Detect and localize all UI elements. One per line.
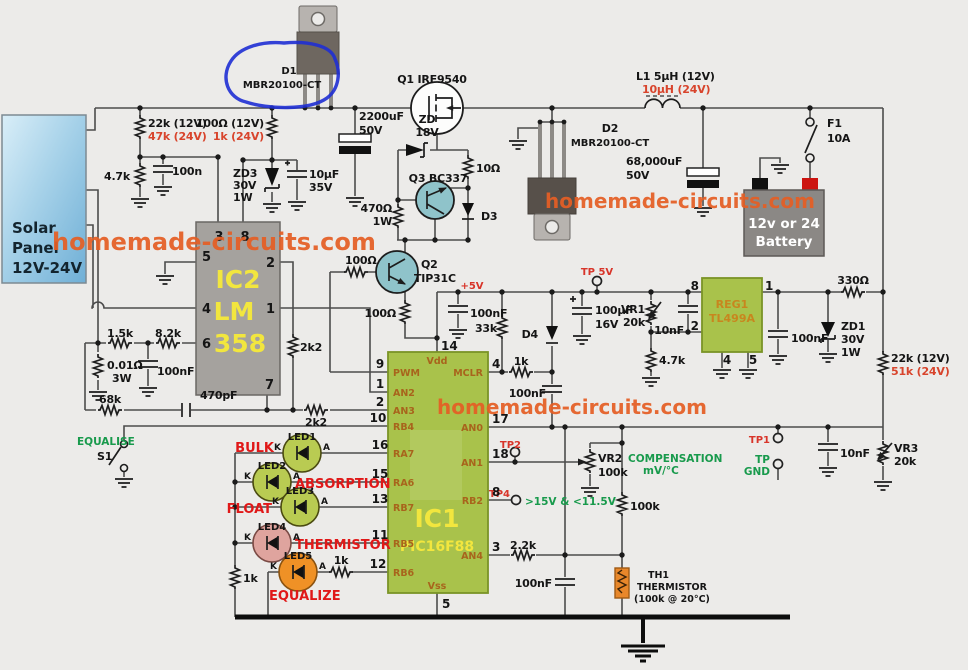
led4-ref: LED4 <box>258 522 287 533</box>
c100n-reg: 100nF <box>791 332 828 345</box>
ic1-pwm: PWM <box>393 368 420 379</box>
ic1-an0: AN0 <box>461 423 483 434</box>
r100-emitter: 100Ω <box>364 307 396 320</box>
ic2-ref: IC2 <box>215 265 260 294</box>
tp-gnd-point <box>774 460 783 469</box>
reg1-pin2: 2 <box>691 319 699 333</box>
compensation-a: COMPENSATION <box>628 453 722 465</box>
d2-package <box>528 124 576 240</box>
ic1-rb7: RB7 <box>393 503 414 514</box>
ic1-pin10: 10 <box>370 411 387 425</box>
led4-k: K <box>244 533 252 543</box>
ic1-vss: Vss <box>428 581 447 592</box>
ground-bus <box>235 617 790 661</box>
vr3-val: 20k <box>894 455 917 468</box>
r001-w: 3W <box>112 372 131 385</box>
reg1-pin1: 1 <box>765 279 773 293</box>
ic1-vdd: Vdd <box>427 356 448 367</box>
c100n-5v: 100nF <box>470 307 507 320</box>
r68k-label: 68k <box>99 393 122 406</box>
r1k-mclr: 1k <box>514 355 529 368</box>
q2-tip31c <box>376 251 418 293</box>
ic2-pin4: 4 <box>202 302 211 317</box>
zener-zd-18v <box>406 143 428 157</box>
vr3-ref: VR3 <box>894 442 918 455</box>
reg1-pin5: 5 <box>749 353 757 367</box>
r22k-24v: 47k (24V) <box>148 130 207 143</box>
c10u-label: 10μF <box>309 168 339 181</box>
vr2-val: 100k <box>598 466 628 479</box>
zd-v: 18V <box>415 126 439 139</box>
equalize-caption: EQUALIZE <box>269 589 341 604</box>
ic1-pin12: 12 <box>370 557 387 571</box>
cap-100uf <box>570 296 592 314</box>
equalise-label: EQUALISE <box>77 436 135 448</box>
q3-label: Q3 BC337 <box>409 172 468 185</box>
ic1-an2: AN2 <box>393 388 415 399</box>
watermark-2: homemade-circuits.com <box>545 189 815 213</box>
led1-a: A <box>323 443 330 453</box>
f1-v: 10A <box>827 132 851 145</box>
r22k-right-12v: 22k (12V) <box>891 352 950 365</box>
main-earth-symbol <box>621 646 665 661</box>
solar-panel: Solar Panel 12V-24V <box>2 115 86 283</box>
reg1-tl499a: REG1 TL499A <box>702 278 762 352</box>
vr1-val: 20k <box>623 316 646 329</box>
inductor-l1 <box>645 99 680 108</box>
r2k2-vertical: 2k2 <box>300 341 322 354</box>
ic1-pin15: 15 <box>372 467 389 481</box>
r1k-bus: 1k <box>243 572 258 585</box>
ic1-rb4: RB4 <box>393 422 415 433</box>
led2-a: A <box>293 472 300 482</box>
tp-gnd-a: TP <box>755 454 770 466</box>
r470-w: 1W <box>373 215 392 228</box>
r100-base: 100Ω <box>345 254 377 267</box>
cap-2200uf-plate2 <box>339 146 371 154</box>
r100k-label: 100k <box>630 500 660 513</box>
ic1-pin9: 9 <box>376 357 384 371</box>
cap-470pf <box>182 403 190 417</box>
ic1-ra6: RA6 <box>393 478 415 489</box>
battery-line1: 12v or 24 <box>748 216 820 232</box>
watermark-1: homemade-circuits.com <box>52 228 376 256</box>
tp5v-label: TP 5V <box>581 267 614 278</box>
s1-label: S1 <box>97 450 112 463</box>
ic1-pin11: 11 <box>372 528 389 542</box>
ic1-ra7: RA7 <box>393 449 414 460</box>
ic1-pin2: 2 <box>376 395 384 409</box>
tp1-point <box>774 434 783 443</box>
ic1-an3: AN3 <box>393 406 415 417</box>
ic2-pin1: 1 <box>266 302 275 317</box>
f1-ref: F1 <box>827 117 842 130</box>
r4k7-top: 4.7k <box>104 170 131 183</box>
cap-68000uf-plate2 <box>687 180 719 188</box>
c100n-left: 100nF <box>157 365 194 378</box>
r001-label: 0.01Ω <box>107 359 143 372</box>
reg1-val: TL499A <box>709 312 755 325</box>
vr1-ref: VR1 <box>621 303 645 316</box>
tp4-note: >15V & <11.5V <box>525 496 617 508</box>
ic1-pin8: 8 <box>492 485 500 499</box>
diode-d4 <box>546 326 558 343</box>
c10u-v: 35V <box>309 181 333 194</box>
d3-label: D3 <box>481 210 497 223</box>
ic2-pin6: 6 <box>202 337 211 352</box>
bulk-caption: BULK <box>235 441 275 456</box>
c10n-vr1: 10nF <box>654 324 684 337</box>
watermark-3: homemade-circuits.com <box>437 395 707 419</box>
solar-line1: Solar <box>12 219 56 237</box>
tp1-label: TP1 <box>749 435 770 446</box>
q3-bc337 <box>416 181 454 219</box>
cap-68000uf-plate <box>687 168 719 176</box>
d2-val: MBR20100-CT <box>571 138 650 149</box>
c100u-v: 16V <box>595 318 619 331</box>
reg1-pin8: 8 <box>691 279 699 293</box>
ic1-rb6: RB6 <box>393 568 415 579</box>
q1-label: Q1 IRF9540 <box>397 73 467 86</box>
th1-name: THERMISTOR <box>637 582 708 593</box>
ic1-pin17: 17 <box>492 412 509 426</box>
c10n-right: 10nF <box>840 447 870 460</box>
battery-line2: Battery <box>756 234 813 250</box>
r4k7-vr1: 4.7k <box>659 354 686 367</box>
r1k-equalize: 1k <box>334 554 349 567</box>
r2k2-horizontal: 2k2 <box>305 416 327 429</box>
reg1-ref: REG1 <box>716 298 749 311</box>
ic1-pin5: 5 <box>442 597 450 611</box>
th1-val: (100k @ 20°C) <box>634 594 710 605</box>
ic1-pin18: 18 <box>492 447 509 461</box>
c100n-top: 100n <box>172 165 202 178</box>
r100-12v: 100Ω (12V) <box>196 117 264 130</box>
ic2-name2: 358 <box>214 329 266 358</box>
d2-ref: D2 <box>602 122 618 135</box>
led5-k: K <box>270 562 278 572</box>
led5-a: A <box>319 562 326 572</box>
c68000-label: 68,000uF <box>626 155 682 168</box>
c470p-label: 470pF <box>200 389 237 402</box>
vr2-arrow <box>578 459 587 466</box>
tp4-point <box>512 496 521 505</box>
ic1-pin16: 16 <box>372 438 389 452</box>
led1-k: K <box>274 443 282 453</box>
zd1-w: 1W <box>841 346 860 359</box>
solar-line3: 12V-24V <box>12 259 82 277</box>
r22k-right-24v: 51k (24V) <box>891 365 950 378</box>
zd1-ref: ZD1 <box>841 320 865 333</box>
r33k-label: 33k <box>475 322 498 335</box>
led3-a: A <box>321 497 328 507</box>
solar-charger-schematic: Solar Panel 12V-24V IC2 LM 358 3 8 5 4 6… <box>0 0 968 670</box>
c100n-mclr: 100nF <box>509 387 546 400</box>
vr2-ref: VR2 <box>598 452 622 465</box>
ic1-pin13: 13 <box>372 492 389 506</box>
zd3-w: 1W <box>233 191 252 204</box>
cap-10uf <box>285 161 307 178</box>
q2-ref: Q2 <box>421 258 438 271</box>
r330-label: 330Ω <box>837 274 869 287</box>
c100n-th: 100nF <box>515 577 552 590</box>
r8k2-label: 8.2k <box>155 327 182 340</box>
ic2-name1: LM <box>214 297 255 326</box>
float-caption: FLOAT <box>227 502 272 517</box>
ic1-ref: IC1 <box>414 504 459 533</box>
ic2-pin7: 7 <box>265 378 274 393</box>
tp-gnd-b: GND <box>744 466 770 478</box>
f1-fuse <box>805 118 817 162</box>
ic1-rb2: RB2 <box>462 496 483 507</box>
ic1-an4: AN4 <box>461 551 483 562</box>
d1-ref: D1 <box>281 66 296 77</box>
led3-k: K <box>272 497 280 507</box>
r100-24v: 1k (24V) <box>213 130 264 143</box>
l1-label-24v: 10μH (24V) <box>642 83 710 96</box>
labels: homemade-circuits.com homemade-circuits.… <box>52 66 950 605</box>
reg1-pin4: 4 <box>723 353 731 367</box>
th1-ref: TH1 <box>648 570 669 581</box>
plus5v-label: +5V <box>460 281 483 292</box>
zd-ref: ZD <box>419 113 436 126</box>
ic1-pin1: 1 <box>376 377 384 391</box>
led1-ref: LED1 <box>288 432 317 443</box>
schematic-page: Solar Panel 12V-24V IC2 LM 358 3 8 5 4 6… <box>0 0 968 670</box>
r10-label: 10Ω <box>476 162 501 175</box>
zd1-v: 30V <box>841 333 865 346</box>
r470-label: 470Ω <box>360 202 392 215</box>
ic1-pin3: 3 <box>492 540 500 554</box>
ic1-an1: AN1 <box>461 458 483 469</box>
c2200-label: 2200uF <box>359 110 404 123</box>
ic2-pin2: 2 <box>266 256 275 271</box>
ic1-pin14: 14 <box>441 339 458 353</box>
ic1-mclr: MCLR <box>453 368 483 379</box>
c2200-v: 50V <box>359 124 383 137</box>
d1-val: MBR20100-CT <box>243 80 322 91</box>
r1k5-label: 1.5k <box>107 327 134 340</box>
d4-label: D4 <box>522 328 539 341</box>
compensation-b: mV/°C <box>643 465 679 477</box>
zener-zd3 <box>265 168 279 192</box>
led4-a: A <box>293 533 300 543</box>
ic1-rb5: RB5 <box>393 539 414 550</box>
q2-val: TIP31C <box>414 272 456 285</box>
ic1-pin4: 4 <box>492 357 500 371</box>
th1-thermistor <box>615 568 629 598</box>
c68000-v: 50V <box>626 169 650 182</box>
led2-ref: LED2 <box>258 461 287 472</box>
l1-label: L1 5μH (12V) <box>636 70 715 83</box>
r2k2-an4: 2.2k <box>510 539 537 552</box>
led2-k: K <box>244 472 252 482</box>
